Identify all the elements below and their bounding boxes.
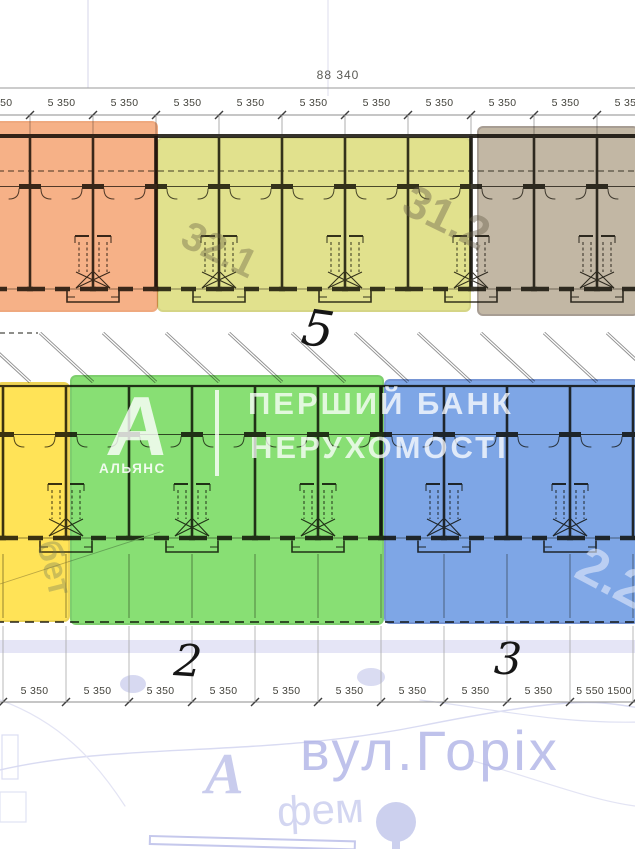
- dimension-label: 5 350: [462, 685, 490, 697]
- map-small-label: фем: [276, 784, 365, 836]
- dimension-label: 5 350: [237, 97, 265, 109]
- block-overlay-orange: [0, 121, 158, 312]
- dimension-label: 5 350: [84, 685, 112, 697]
- dimension-label: 5 350: [300, 97, 328, 109]
- site-plan-image: 88 340 5 3505 3505 3505 3505 3505 3505 3…: [0, 0, 635, 849]
- handwritten-number-bottom-left: 2: [172, 635, 203, 688]
- brand-logo-caption: АЛЬЯНС: [99, 461, 166, 476]
- dimension-label: 5 350: [489, 97, 517, 109]
- dimension-label: 5 350: [147, 685, 175, 697]
- handwritten-number-bottom-right: 3: [493, 634, 523, 686]
- map-block-letter: А: [205, 740, 244, 807]
- brand-name-line1: ПЕРШИЙ БАНК: [248, 386, 514, 422]
- dimension-label: 5 550 1500: [576, 685, 632, 697]
- dimension-label: 5 350: [336, 685, 364, 697]
- brand-name-line2: НЕРУХОМОСТІ: [250, 430, 509, 466]
- brand-divider: [215, 390, 219, 476]
- dimension-label: 5 350: [399, 685, 427, 697]
- dimension-label: 5 350: [615, 97, 635, 109]
- dimension-label: 5 350: [363, 97, 391, 109]
- dimension-label: 5 350: [525, 685, 553, 697]
- dimension-label: 5 350: [21, 685, 49, 697]
- dimension-label: 5 350: [426, 97, 454, 109]
- street-name-label: вул.Горіх: [300, 718, 560, 783]
- dimension-label: 5 350: [174, 97, 202, 109]
- dimension-label: 5 350: [48, 97, 76, 109]
- dimension-label: 5 350: [273, 685, 301, 697]
- dimension-label: 5 350: [210, 685, 238, 697]
- dimension-label: 5 350: [0, 97, 12, 109]
- dimension-label: 5 350: [552, 97, 580, 109]
- block-overlay-brown: [477, 126, 635, 316]
- dimension-label: 5 350: [111, 97, 139, 109]
- total-dimension-label: 88 340: [317, 68, 360, 82]
